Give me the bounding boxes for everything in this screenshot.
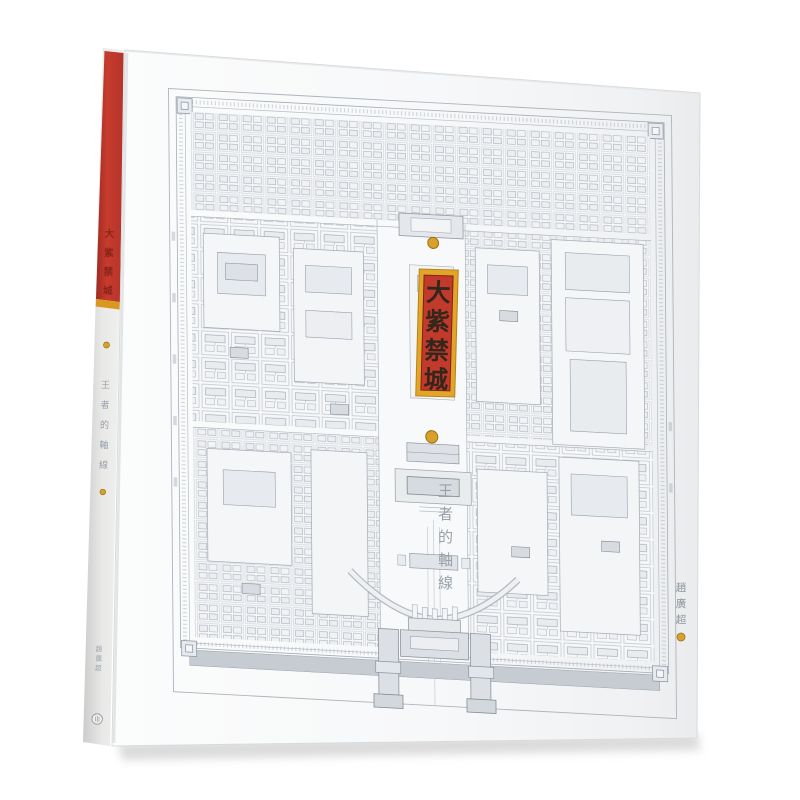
spine-subtitle-char: 軸 [99,439,108,450]
cover-subtitle-char: 的 [438,529,453,546]
cover-subtitle-char: 王 [438,484,453,500]
spine-author: 趙 廣 超 [95,644,103,672]
cover-author-char: 趙 [676,581,687,594]
spine-author-char: 趙 [96,644,103,653]
spine-subtitle-char: 的 [100,419,109,430]
spine-subtitle-char: 者 [100,400,109,410]
cover-author-char: 廣 [676,597,687,610]
book-product-photo: 大 紫 禁 城 王 者 的 軸 線 趙 廣 超 [0,0,800,800]
title-plaque: 大 紫 禁 城 [416,269,459,397]
cover-title-char: 城 [423,366,449,395]
cover-subtitle-char: 軸 [438,552,453,569]
cover-author-char: 超 [676,613,687,626]
forbidden-city-map [169,89,677,724]
cover-subtitle-char: 者 [438,506,453,523]
cover-author-gold-dot [677,633,685,641]
spine-subtitle-char: 線 [99,459,108,470]
axis-gold-dot-mid [426,430,438,443]
spine-title-char: 紫 [104,247,114,259]
cover-title-char: 禁 [424,337,450,366]
spine-subtitle-char: 王 [101,380,110,390]
cover-author: 趙 廣 超 [676,581,687,626]
publisher-logo-icon [92,714,102,724]
cover-subtitle-char: 線 [438,575,453,592]
spine-gold-dot-bottom [100,489,106,495]
spine-author-char: 廣 [95,654,102,663]
spine-title-char: 禁 [103,266,114,278]
book-front-cover: 大 紫 禁 城 王 者 的 軸 線 趙 廣 超 [112,50,700,746]
spine-gold-dot-top [104,342,110,348]
map-north-gate [399,213,463,239]
axis-gold-dot-top [428,237,439,249]
spine-title-char: 城 [103,285,113,297]
cover-title-char: 大 [426,279,452,308]
spine-title-char: 大 [105,228,115,240]
cover-title-char: 紫 [425,308,450,337]
spine-author-char: 超 [95,663,102,672]
product-photo-scene: 大 紫 禁 城 王 者 的 軸 線 趙 廣 超 [0,0,800,800]
